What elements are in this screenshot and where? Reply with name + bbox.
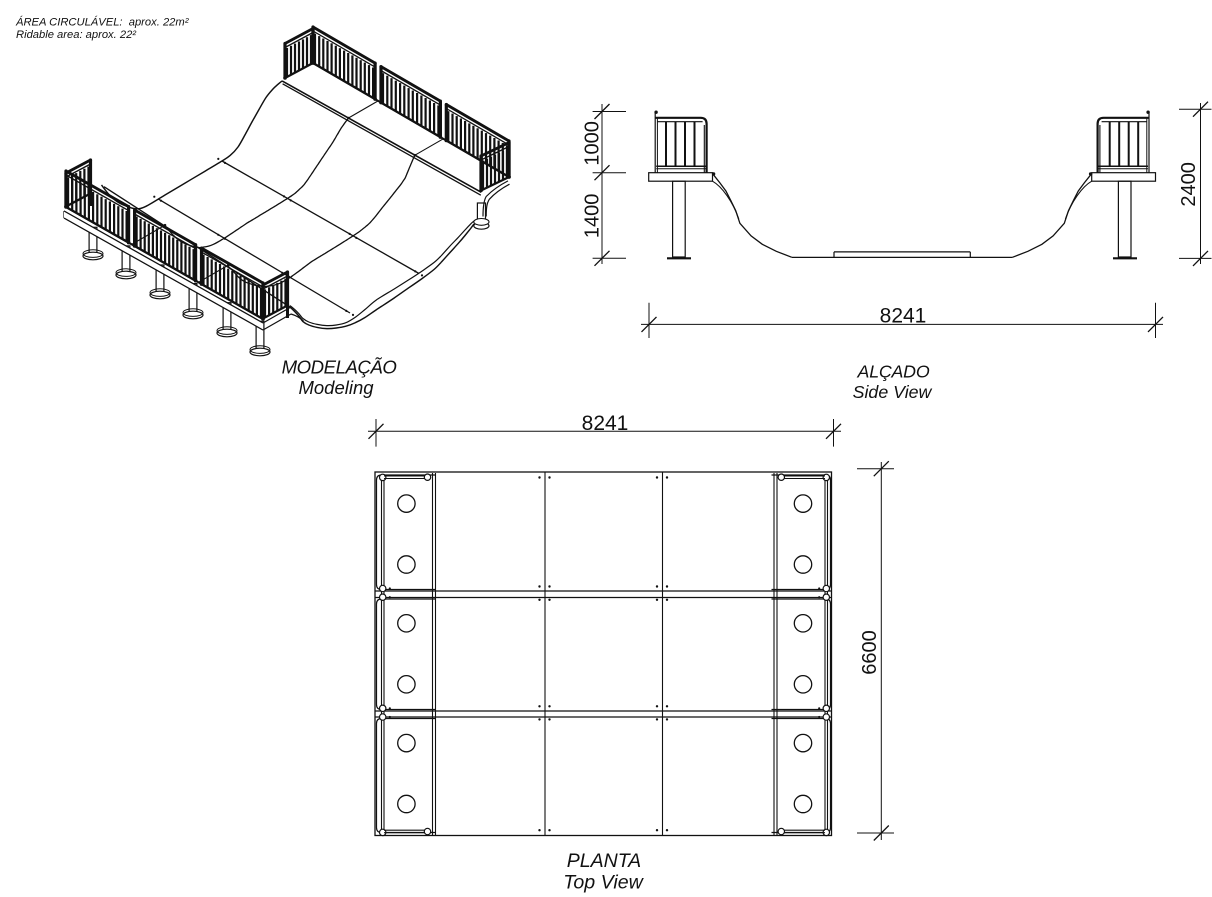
- svg-text:Side View: Side View: [853, 382, 933, 402]
- svg-text:1400: 1400: [582, 194, 604, 239]
- svg-text:ALÇADO: ALÇADO: [857, 362, 930, 382]
- svg-text:1000: 1000: [582, 121, 604, 166]
- svg-text:8241: 8241: [582, 412, 629, 435]
- svg-text:MODELAÇÃO: MODELAÇÃO: [282, 357, 397, 378]
- svg-text:PLANTA: PLANTA: [567, 850, 641, 872]
- svg-text:2400: 2400: [1178, 162, 1200, 207]
- svg-text:Ridable area: aprox. 22²: Ridable area: aprox. 22²: [16, 29, 137, 41]
- svg-text:6600: 6600: [859, 630, 881, 675]
- svg-text:Modeling: Modeling: [298, 377, 374, 398]
- svg-text:Top View: Top View: [563, 872, 644, 894]
- svg-text:8241: 8241: [880, 304, 927, 327]
- svg-text:ÁREA CIRCULÁVEL: aprox. 22m²: ÁREA CIRCULÁVEL: aprox. 22m²: [15, 15, 190, 28]
